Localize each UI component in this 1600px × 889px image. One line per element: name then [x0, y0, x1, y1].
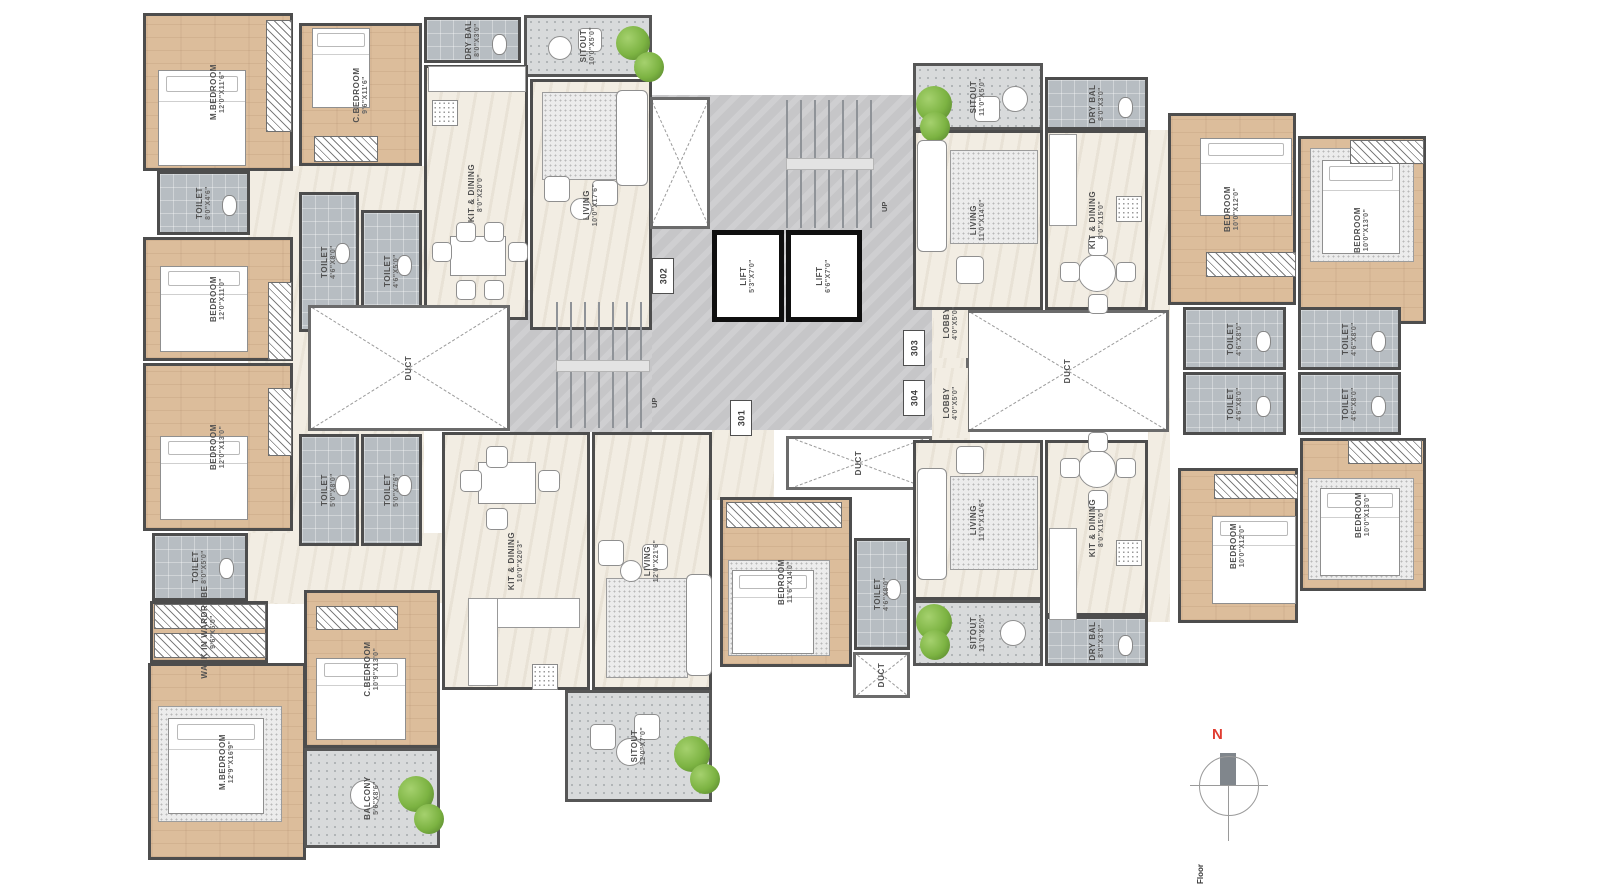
chair-furniture — [578, 28, 602, 52]
room-duct: DUCT — [966, 310, 1169, 432]
rug-furniture — [542, 92, 624, 180]
tree-furniture — [920, 630, 950, 660]
sofa-furniture — [917, 468, 947, 580]
room-label: TOILET8'0"X5'0" — [191, 550, 209, 584]
hatch-furniture — [1350, 140, 1424, 164]
stairs-up-label: UP — [650, 398, 659, 408]
compass: N — [1178, 726, 1288, 851]
hatch-furniture — [1214, 474, 1298, 499]
room-label: LOBBY4'0"X5'0" — [942, 306, 960, 340]
bed-furniture — [168, 718, 264, 814]
room-toilet: TOILET4'6"X8'0" — [854, 538, 910, 650]
unit-number-plate-301: 301 — [730, 400, 752, 436]
room-label: DRY BAL8'0"X3'0" — [1088, 621, 1106, 660]
room-toilet: TOILET4'6"X8'0" — [1298, 307, 1401, 370]
room-toilet: TOILET8'0"X5'0" — [152, 533, 248, 601]
chair-furniture — [1088, 236, 1108, 256]
chair-furniture — [484, 222, 504, 242]
room-label: TOILET5'0"X8'0" — [320, 473, 338, 507]
room-label: TOILET5'0"X7'6" — [383, 473, 401, 507]
chair-furniture — [598, 540, 624, 566]
room-label: TOILET4'6"X5'0" — [383, 254, 401, 288]
chair-furniture — [1060, 458, 1080, 478]
tbl-furniture — [478, 462, 536, 504]
chair-furniture — [544, 176, 570, 202]
counter-furniture — [468, 598, 498, 686]
room-label: TOILET4'6"X8'0" — [320, 245, 338, 279]
footer-floor-text: Floor — [1196, 864, 1205, 884]
chair-furniture — [456, 280, 476, 300]
bed-furniture — [316, 658, 406, 740]
room-label: DRY BAL8'0"X3'0" — [1088, 84, 1106, 123]
room-label: TOILET4'6"X8'0" — [1341, 322, 1359, 356]
room-label: LIFT5'3"X7'0" — [739, 259, 757, 293]
landing-furniture — [556, 360, 650, 372]
bed-furniture — [732, 570, 814, 654]
chair-furniture — [634, 714, 660, 740]
bed-furniture — [158, 70, 246, 166]
chair-furniture — [956, 256, 984, 284]
hatch-furniture — [1348, 440, 1422, 464]
bed-furniture — [160, 266, 248, 352]
rug-furniture — [606, 578, 688, 678]
room-label: DRY BAL8'0"X3'0" — [464, 20, 482, 59]
rug-furniture — [950, 150, 1038, 244]
counter-furniture — [1049, 134, 1077, 226]
chair-furniture — [590, 724, 616, 750]
room-label: LIFT6'6"X7'0" — [815, 259, 833, 293]
sofa-furniture — [917, 140, 947, 252]
room-label: KIT & DINING8'0"X20'0" — [467, 163, 485, 221]
round-furniture — [616, 738, 644, 766]
tree-furniture — [690, 764, 720, 794]
chair-furniture — [486, 446, 508, 468]
chair-furniture — [1116, 458, 1136, 478]
chair-furniture — [642, 544, 668, 570]
room-duct: DUCT — [308, 305, 510, 431]
rug-furniture — [950, 476, 1038, 570]
chair-furniture — [486, 508, 508, 530]
compass-north-label: N — [1212, 726, 1223, 743]
round-furniture — [548, 36, 572, 60]
hatch-furniture — [316, 606, 398, 630]
room-label: TOILET4'6"X8'0" — [1226, 387, 1244, 421]
chair-furniture — [432, 242, 452, 262]
hatch-furniture — [314, 136, 378, 162]
counter-furniture — [428, 66, 526, 92]
room-toilet: TOILET8'0"X4'6" — [157, 171, 250, 235]
hatch-furniture — [266, 20, 292, 132]
bed-furniture — [1212, 516, 1296, 604]
room-duct — [650, 97, 710, 229]
dots-furniture — [1116, 196, 1142, 222]
bed-furniture — [160, 436, 248, 520]
compass-vertical-line — [1228, 785, 1229, 841]
room-toilet: TOILET4'6"X8'0" — [1183, 372, 1286, 435]
sofa-furniture — [616, 90, 648, 186]
room-toilet: TOILET5'0"X7'6" — [361, 434, 422, 546]
tbl-furniture — [450, 236, 506, 276]
chair-furniture — [1116, 262, 1136, 282]
room-label: LOBBY4'0"X5'0" — [942, 386, 960, 420]
bed-furniture — [1322, 160, 1400, 254]
room-toilet: TOILET4'6"X8'0" — [1298, 372, 1401, 435]
room-toilet: TOILET5'0"X8'0" — [299, 434, 359, 546]
hatch-furniture — [1206, 252, 1296, 277]
chair-furniture — [484, 280, 504, 300]
chair-furniture — [1060, 262, 1080, 282]
unit-number-plate-304: 304 — [903, 380, 925, 416]
stairs-up-label: UP — [880, 202, 889, 212]
sofa-furniture — [686, 574, 712, 676]
room-label: TOILET8'0"X4'6" — [195, 186, 213, 220]
room-label: TOILET4'6"X8'0" — [873, 577, 891, 611]
bed-furniture — [312, 28, 370, 108]
round-furniture — [570, 198, 592, 220]
room-open — [712, 430, 774, 500]
unit-number-plate-302: 302 — [652, 258, 674, 294]
room-dry-bal: DRY BAL8'0"X3'0" — [1045, 616, 1148, 666]
compass-horizontal-line — [1190, 785, 1268, 786]
room-lobby: LOBBY4'0"X5'0" — [934, 368, 968, 438]
tree-furniture — [414, 804, 444, 834]
tbl-r-furniture — [1078, 254, 1116, 292]
chair-furniture — [1088, 294, 1108, 314]
room-label: TOILET4'6"X8'0" — [1341, 387, 1359, 421]
round-furniture — [1002, 86, 1028, 112]
landing-furniture — [786, 158, 874, 170]
chair-furniture — [538, 470, 560, 492]
room-toilet: TOILET4'6"X8'0" — [1183, 307, 1286, 370]
hatch-furniture — [726, 502, 842, 528]
room-lift: LIFT5'3"X7'0" — [712, 230, 784, 322]
room-lift: LIFT6'6"X7'0" — [786, 230, 862, 322]
chair-furniture — [460, 470, 482, 492]
hatch-furniture — [154, 604, 266, 629]
hatch-furniture — [154, 633, 266, 658]
tree-furniture — [634, 52, 664, 82]
chair-furniture — [974, 96, 1000, 122]
counter-furniture — [1049, 528, 1077, 620]
room-dry-bal: DRY BAL8'0"X3'0" — [1045, 77, 1148, 130]
dots-furniture — [532, 664, 558, 690]
unit-number-plate-303: 303 — [903, 330, 925, 366]
chair-furniture — [592, 180, 618, 206]
tree-furniture — [920, 112, 950, 142]
chair-furniture — [1088, 490, 1108, 510]
room-label: TOILET4'6"X8'0" — [1226, 322, 1244, 356]
chair-furniture — [956, 446, 984, 474]
chair-furniture — [508, 242, 528, 262]
hatch-furniture — [268, 282, 292, 360]
room-dry-bal: DRY BAL8'0"X3'0" — [424, 17, 521, 63]
dots-furniture — [432, 100, 458, 126]
bed-furniture — [1200, 138, 1292, 216]
round-furniture — [620, 560, 642, 582]
dots-furniture — [1116, 540, 1142, 566]
room-label: SITOUT11'0"X5'0" — [969, 614, 987, 652]
room-duct: DUCT — [786, 436, 932, 490]
bed-furniture — [1320, 488, 1400, 576]
chair-furniture — [1088, 432, 1108, 452]
round-furniture — [350, 780, 380, 810]
hatch-furniture — [268, 388, 292, 456]
compass-circle — [1199, 756, 1259, 816]
room-duct: DUCT — [853, 652, 910, 698]
round-furniture — [1000, 620, 1026, 646]
room-label: KIT & DINING10'0"X20'3" — [507, 532, 525, 590]
chair-furniture — [456, 222, 476, 242]
tbl-r-furniture — [1078, 450, 1116, 488]
floor-plan: N Floor M.BEDROOM12'0"X11'6"C.BEDROOM9'6… — [0, 0, 1600, 889]
